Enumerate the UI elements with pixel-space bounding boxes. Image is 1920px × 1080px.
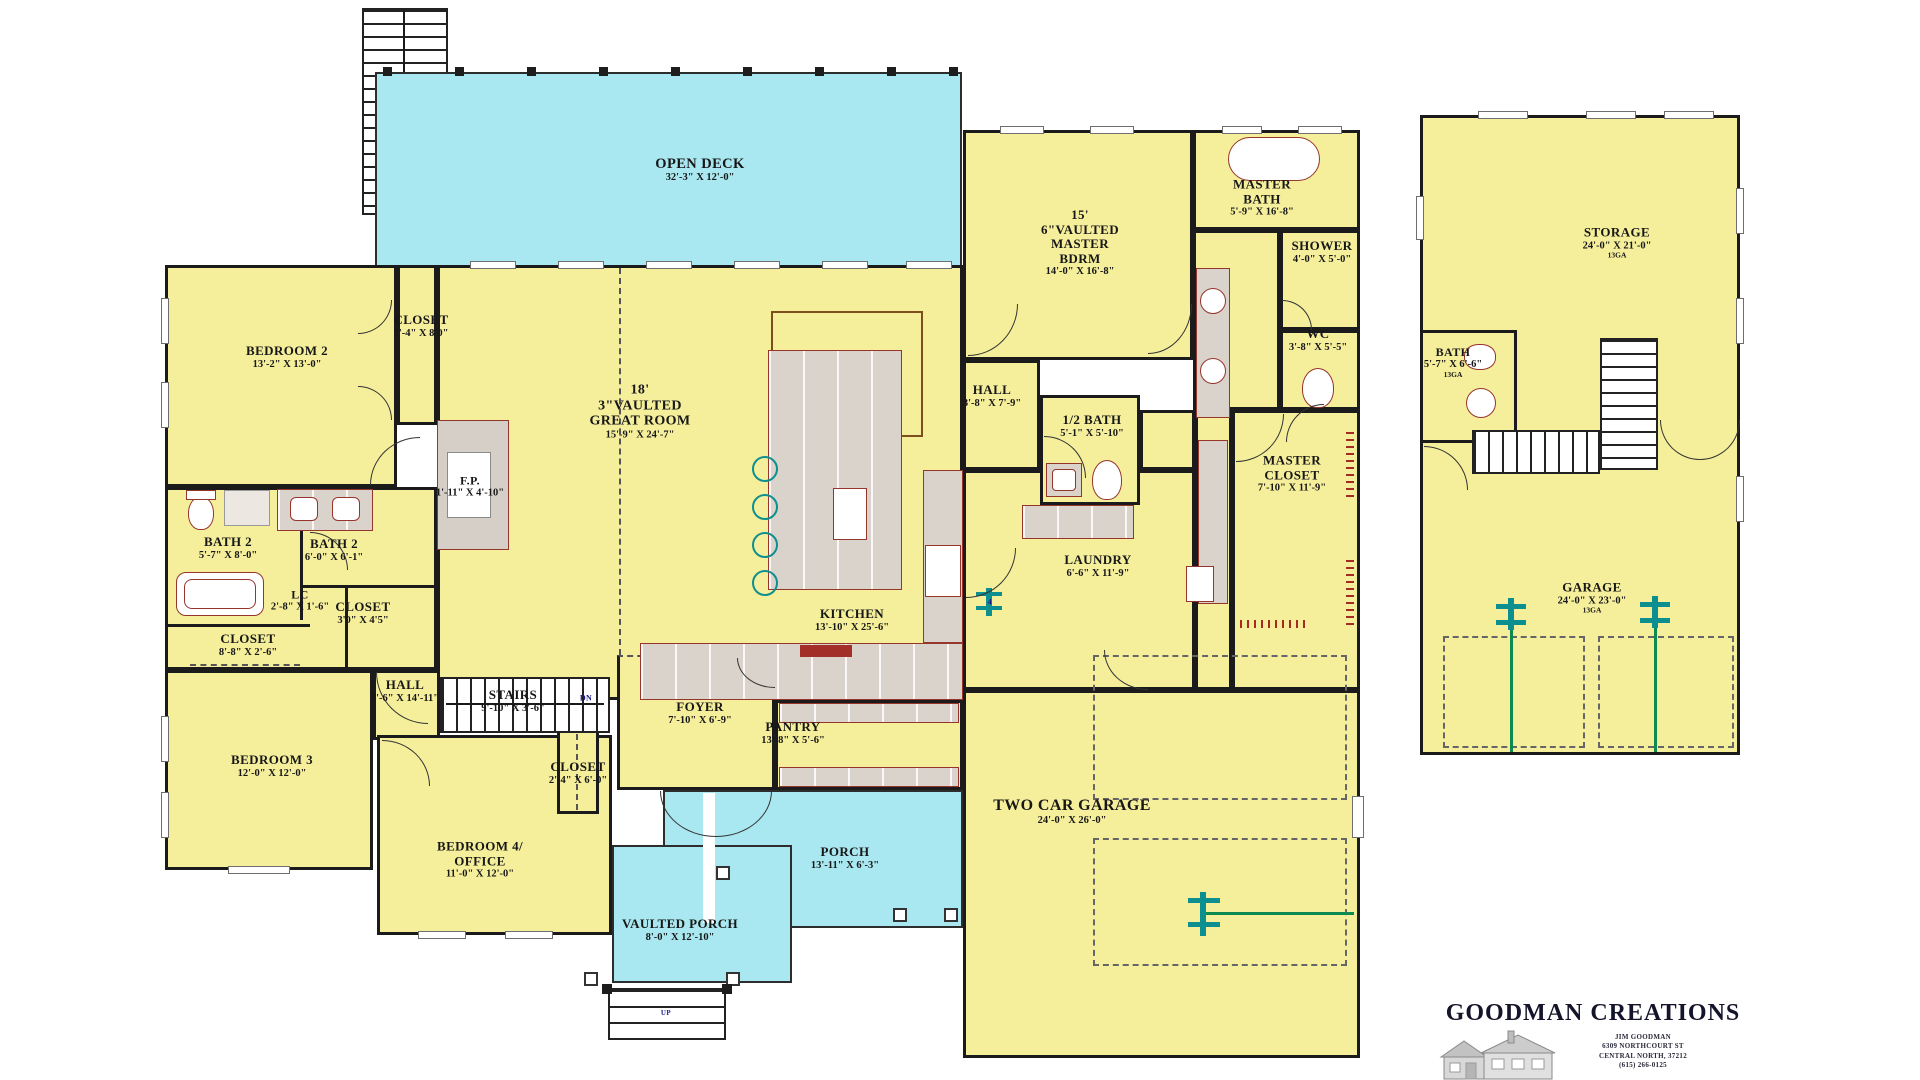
- sink-icon: [1200, 358, 1226, 384]
- plan-post: [949, 67, 958, 76]
- label-line: CLOSET: [393, 313, 448, 328]
- logo-house-icon: [1438, 1029, 1558, 1080]
- label-line: 13'-10" X 25'-6": [815, 621, 889, 633]
- toilet-wc: [1302, 368, 1334, 408]
- plan-post: [722, 984, 732, 994]
- label-line: CLOSET: [549, 760, 607, 775]
- plan-win: [734, 261, 780, 269]
- label-hall-master: HALL3'-8" X 7'-9": [963, 383, 1021, 409]
- label-line: GREAT ROOM: [589, 414, 690, 430]
- plan-win: [418, 931, 466, 939]
- label-line: 6'-0" X 6'-1": [305, 551, 363, 563]
- logo-title: GOODMAN CREATIONS: [1438, 1000, 1748, 1027]
- master-tub: [1228, 137, 1320, 181]
- garage-door-track: [1654, 628, 1657, 752]
- label-line: PORCH: [811, 845, 879, 860]
- garage-bay-dashed: [1598, 636, 1734, 748]
- plan-wfx: [186, 490, 216, 500]
- laundry-sink: [1186, 566, 1214, 602]
- label-pantry: PANTRY13'-8" X 5'-6": [761, 720, 825, 746]
- plan-win: [1222, 126, 1262, 134]
- garage-bay-dashed: [1093, 838, 1347, 966]
- plan-win: [161, 298, 169, 344]
- label-line: 3'-8" X 5'-5": [1289, 341, 1347, 353]
- plan-tealbar: [1188, 922, 1220, 927]
- label-line: 13GA: [1558, 607, 1627, 615]
- label-line: F.P.: [436, 474, 504, 487]
- porch-column: [893, 908, 907, 922]
- label-line: 24'-0" X 26'-0": [993, 815, 1151, 827]
- garage-door-post: [1508, 598, 1514, 630]
- label-line: STORAGE: [1583, 226, 1652, 241]
- label-linen-closet: LC2'-8" X 1'-6": [271, 588, 329, 613]
- plan-post: [602, 984, 612, 994]
- plan-win: [505, 931, 553, 939]
- label-shower: SHOWER4'-0" X 5'-0": [1292, 239, 1353, 265]
- plan-element: [1508, 1031, 1514, 1043]
- label-line: 5'-7" X 8'-0": [199, 549, 257, 561]
- plan-element: [1492, 1059, 1504, 1069]
- label-line: 15'-9" X 24'-7": [589, 430, 690, 442]
- label-line: 3'-8" X 7'-9": [963, 397, 1021, 409]
- plan-win: [1416, 196, 1424, 240]
- pantry-shelf-bottom: [779, 767, 959, 787]
- label-laundry: LAUNDRY6'-6" X 11'-9": [1064, 553, 1131, 579]
- shower-bath2: [224, 490, 270, 526]
- label-line: PANTRY: [761, 720, 825, 735]
- label-line: 13'-2" X 13'-0": [246, 358, 328, 370]
- label-line: 2'-4" X 6'-0": [549, 774, 607, 786]
- label-closet-bedroom-4: CLOSET2'-4" X 6'-0": [549, 760, 607, 786]
- label-line: CLOSET: [219, 632, 277, 647]
- plan-tealbar: [1188, 898, 1220, 903]
- plan-wall: [345, 585, 348, 670]
- label-closet-bedroom-3: CLOSET8'-8" X 2'-6": [219, 632, 277, 658]
- logo-address-line: CENTRAL NORTH, 37212: [1558, 1052, 1728, 1061]
- plan-win: [1478, 111, 1528, 119]
- label-line: VAULTED PORCH: [622, 917, 738, 932]
- hanger-rod: [1346, 432, 1354, 502]
- label-line: 6"VAULTED: [1041, 223, 1119, 238]
- label-great-room: 18'3"VAULTEDGREAT ROOM15'-9" X 24'-7": [589, 383, 690, 442]
- label-open-deck: OPEN DECK32'-3" X 12'-0": [655, 156, 744, 184]
- plan-element: [1450, 1063, 1460, 1072]
- kitchen-sink: [833, 488, 867, 540]
- label-line: HALL: [963, 383, 1021, 398]
- label-line: STAIRS: [481, 688, 545, 703]
- closet-bedroom-2-area: [397, 265, 437, 425]
- label-half-bath: 1/2 BATH5'-1" X 5'-10": [1060, 413, 1124, 439]
- plan-win: [1298, 126, 1342, 134]
- hanger-rod: [1240, 620, 1310, 628]
- logo-address-line: (615) 266-0125: [1558, 1061, 1728, 1070]
- plan-post: [455, 67, 464, 76]
- label-two-car-garage: TWO CAR GARAGE24'-0" X 26'-0": [993, 797, 1151, 827]
- label-master-closet: MASTERCLOSET7'-10" X 11'-9": [1258, 454, 1326, 495]
- plan-tealbar: [1496, 620, 1526, 625]
- plan-win: [161, 382, 169, 428]
- label-vaulted-porch: VAULTED PORCH8'-0" X 12'-10": [622, 917, 738, 943]
- label-stairs-dn: DN: [580, 695, 592, 704]
- label-line: OFFICE: [437, 854, 523, 869]
- plan-win: [1736, 476, 1744, 522]
- detached-stairs-upper: [1600, 338, 1658, 470]
- label-line: KITCHEN: [815, 607, 889, 622]
- kitchen-island: [768, 350, 902, 590]
- bar-stool: [752, 532, 778, 558]
- label-line: CLOSET: [335, 600, 390, 615]
- plan-element: [1481, 1035, 1555, 1053]
- label-line: 8'-0" X 12'-10": [622, 931, 738, 943]
- hall-master-area: [963, 360, 1040, 470]
- label-line: TWO CAR GARAGE: [993, 797, 1151, 815]
- label-line: 14'-0" X 16'-8": [1041, 266, 1119, 278]
- label-line: MASTER: [1230, 178, 1294, 193]
- water-heater: [1466, 388, 1496, 418]
- nook-area: [1140, 410, 1195, 470]
- porch-column: [944, 908, 958, 922]
- label-line: 6'-6" X 11'-9": [1064, 567, 1131, 579]
- label-line: 12'-0" X 12'-0": [231, 767, 313, 779]
- plan-post: [815, 67, 824, 76]
- label-line: 32'-3" X 12'-0": [655, 172, 744, 184]
- range-icon: [800, 645, 852, 657]
- label-bedroom-3: BEDROOM 312'-0" X 12'-0": [231, 753, 313, 779]
- label-line: 7'-10" X 11'-9": [1258, 483, 1326, 495]
- label-bath-detached: BATH5'-7" X 6'-6"13GA: [1424, 346, 1482, 380]
- fridge-icon: [925, 545, 961, 597]
- label-line: 7'-10" X 6'-9": [668, 714, 732, 726]
- plan-win: [1000, 126, 1044, 134]
- label-wc: WC3'-8" X 5'-5": [1289, 327, 1347, 353]
- label-line: 18': [589, 383, 690, 399]
- plan-win: [906, 261, 952, 269]
- plan-win: [470, 261, 516, 269]
- plan-win: [1736, 298, 1744, 344]
- plan-post: [743, 67, 752, 76]
- toilet-bath2: [188, 496, 214, 530]
- plan-win: [646, 261, 692, 269]
- label-foyer: FOYER7'-10" X 6'-9": [668, 700, 732, 726]
- label-line: 13'-8" X 5'-6": [761, 734, 825, 746]
- label-line: DN: [580, 695, 592, 704]
- sink-icon: [290, 497, 318, 521]
- label-master-bath: MASTERBATH5'-9" X 16'-8": [1230, 178, 1294, 219]
- label-line: CLOSET: [1258, 468, 1326, 483]
- plan-win: [1586, 111, 1636, 119]
- label-garage-note-4: 4: [988, 599, 992, 608]
- label-line: LAUNDRY: [1064, 553, 1131, 568]
- label-line: BDRM: [1041, 252, 1119, 267]
- plan-tealbar: [1640, 618, 1670, 623]
- plan-win: [161, 716, 169, 762]
- label-bath-2-left: BATH 25'-7" X 8'-0": [199, 535, 257, 561]
- logo-block: GOODMAN CREATIONS JIM GOODMAN6309 NORTHC…: [1438, 1000, 1748, 1080]
- floor-plan-canvas: OPEN DECK32'-3" X 12'-0"BEDROOM 213'-2" …: [0, 0, 1920, 1080]
- label-line: 11'-0" X 12'-0": [437, 869, 523, 881]
- porch-column: [716, 866, 730, 880]
- label-line: 2'-8" X 1'-6": [271, 602, 329, 614]
- plan-post: [671, 67, 680, 76]
- plan-post: [527, 67, 536, 76]
- garage-door-track: [1206, 912, 1354, 915]
- plan-post: [383, 67, 392, 76]
- plan-wall: [165, 624, 310, 627]
- label-line: 5'-1" X 5'-10": [1060, 427, 1124, 439]
- label-line: HALL: [371, 678, 439, 693]
- label-line: 2'-4" X 8'0": [393, 327, 448, 339]
- label-porch: PORCH13'-11" X 6'-3": [811, 845, 879, 871]
- plan-win: [161, 792, 169, 838]
- label-line: MASTER: [1041, 237, 1119, 252]
- plan-win: [1090, 126, 1134, 134]
- bar-stool: [752, 570, 778, 596]
- label-line: GARAGE: [1558, 581, 1627, 596]
- plan-win: [1664, 111, 1714, 119]
- label-line: BEDROOM 2: [246, 344, 328, 359]
- label-fireplace: F.P.1'-11" X 4'-10": [436, 474, 504, 499]
- label-line: SHOWER: [1292, 239, 1353, 254]
- plan-element: [1466, 1063, 1476, 1079]
- plan-tealbar: [1640, 602, 1670, 607]
- label-line: 5'-9" X 16'-8": [1230, 207, 1294, 219]
- plan-win: [558, 261, 604, 269]
- plan-element: [1512, 1059, 1524, 1069]
- label-line: 8'-8" X 2'-6": [219, 646, 277, 658]
- hanger-rod: [1346, 560, 1354, 630]
- plan-dashv: [619, 268, 621, 655]
- detached-stairs-lower: [1472, 430, 1600, 474]
- label-closet-bedroom-2: CLOSET2'-4" X 8'0": [393, 313, 448, 339]
- label-closet-hall: CLOSET3'0" X 4'5": [335, 600, 390, 626]
- garage-bay-dashed: [1443, 636, 1585, 748]
- bifold-door: [190, 664, 300, 666]
- label-line: BEDROOM 3: [231, 753, 313, 768]
- label-line: LC: [271, 588, 329, 601]
- label-line: BATH 2: [199, 535, 257, 550]
- label-line: BATH 2: [305, 537, 363, 552]
- label-bedroom-4-office: BEDROOM 4/OFFICE11'-0" X 12'-0": [437, 840, 523, 881]
- label-line: 1'-11" X 4'-10": [436, 488, 504, 500]
- label-line: 15': [1041, 208, 1119, 223]
- label-hall-left: HALL3'-6" X 14'-11": [371, 678, 439, 704]
- sink-icon: [1200, 288, 1226, 314]
- garage-door-post: [1652, 596, 1658, 628]
- bar-stool: [752, 494, 778, 520]
- label-line: UP: [661, 1010, 671, 1018]
- porch-column: [584, 972, 598, 986]
- plan-win: [228, 866, 290, 874]
- plan-win: [1736, 188, 1744, 234]
- vaulted-porch-area: [612, 845, 792, 983]
- label-stairs-main: STAIRS9'-10" X 3'-6": [481, 688, 545, 714]
- label-bath-2-right: BATH 26'-0" X 6'-1": [305, 537, 363, 563]
- plan-element: [1441, 1041, 1487, 1057]
- label-line: BATH: [1230, 192, 1294, 207]
- logo-address-lines: JIM GOODMAN6309 NORTHCOURT STCENTRAL NOR…: [1558, 1029, 1728, 1080]
- label-line: MASTER: [1258, 454, 1326, 469]
- label-line: WC: [1289, 327, 1347, 342]
- label-garage-detached: GARAGE24'-0" X 23'-0"13GA: [1558, 581, 1627, 616]
- plan-abs: [184, 579, 256, 609]
- label-line: 13GA: [1583, 252, 1652, 260]
- label-line: OPEN DECK: [655, 156, 744, 172]
- garage-door-track: [1510, 630, 1513, 752]
- label-line: 3'0" X 4'5": [335, 614, 390, 626]
- label-master-bedroom: 15'6"VAULTEDMASTERBDRM14'-0" X 16'-8": [1041, 208, 1119, 278]
- bedroom-2-area: [165, 265, 397, 487]
- label-line: 9'-10" X 3'-6": [481, 702, 545, 714]
- label-line: 4: [988, 599, 992, 608]
- label-bedroom-2: BEDROOM 213'-2" X 13'-0": [246, 344, 328, 370]
- plan-element: [1532, 1059, 1544, 1069]
- plan-win: [822, 261, 868, 269]
- label-storage: STORAGE24'-0" X 21'-0"13GA: [1583, 226, 1652, 261]
- plan-tealbar: [1496, 604, 1526, 609]
- label-steps-up: UP: [661, 1010, 671, 1018]
- label-line: BEDROOM 4/: [437, 840, 523, 855]
- plan-post: [599, 67, 608, 76]
- plan-logo-rows: JIM GOODMAN6309 NORTHCOURT STCENTRAL NOR…: [1438, 1029, 1748, 1080]
- label-kitchen: KITCHEN13'-10" X 25'-6": [815, 607, 889, 633]
- plan-post: [887, 67, 896, 76]
- toilet-half-bath: [1092, 460, 1122, 500]
- label-line: 3'-6" X 14'-11": [371, 692, 439, 704]
- sink-icon: [332, 497, 360, 521]
- label-line: 13'-11" X 6'-3": [811, 859, 879, 871]
- laundry-counter: [1022, 505, 1134, 539]
- label-line: 13GA: [1424, 371, 1482, 379]
- label-line: 1/2 BATH: [1060, 413, 1124, 428]
- garage-side-door: [1352, 796, 1364, 838]
- label-line: 4'-0" X 5'-0": [1292, 253, 1353, 265]
- bar-stool: [752, 456, 778, 482]
- logo-address-line: 6309 NORTHCOURT ST: [1558, 1042, 1728, 1051]
- label-line: FOYER: [668, 700, 732, 715]
- logo-address-line: JIM GOODMAN: [1558, 1033, 1728, 1042]
- label-line: BATH: [1424, 346, 1482, 359]
- label-line: 3"VAULTED: [589, 398, 690, 414]
